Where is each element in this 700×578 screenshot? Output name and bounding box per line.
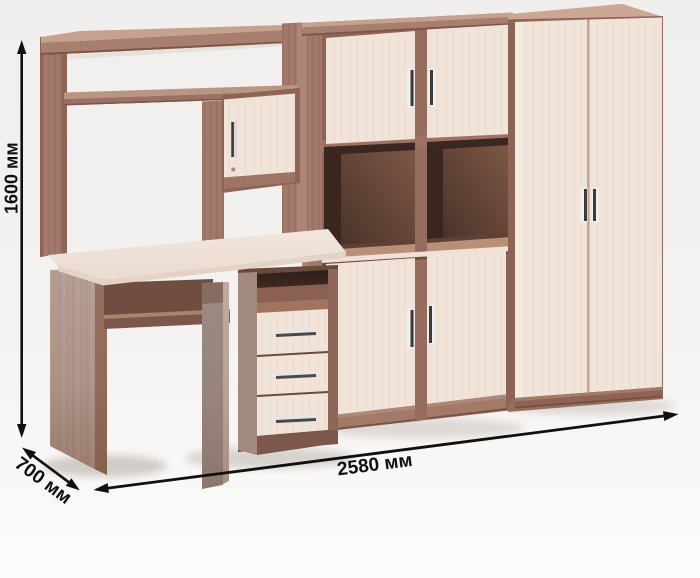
svg-text:1600 мм: 1600 мм — [2, 142, 22, 214]
